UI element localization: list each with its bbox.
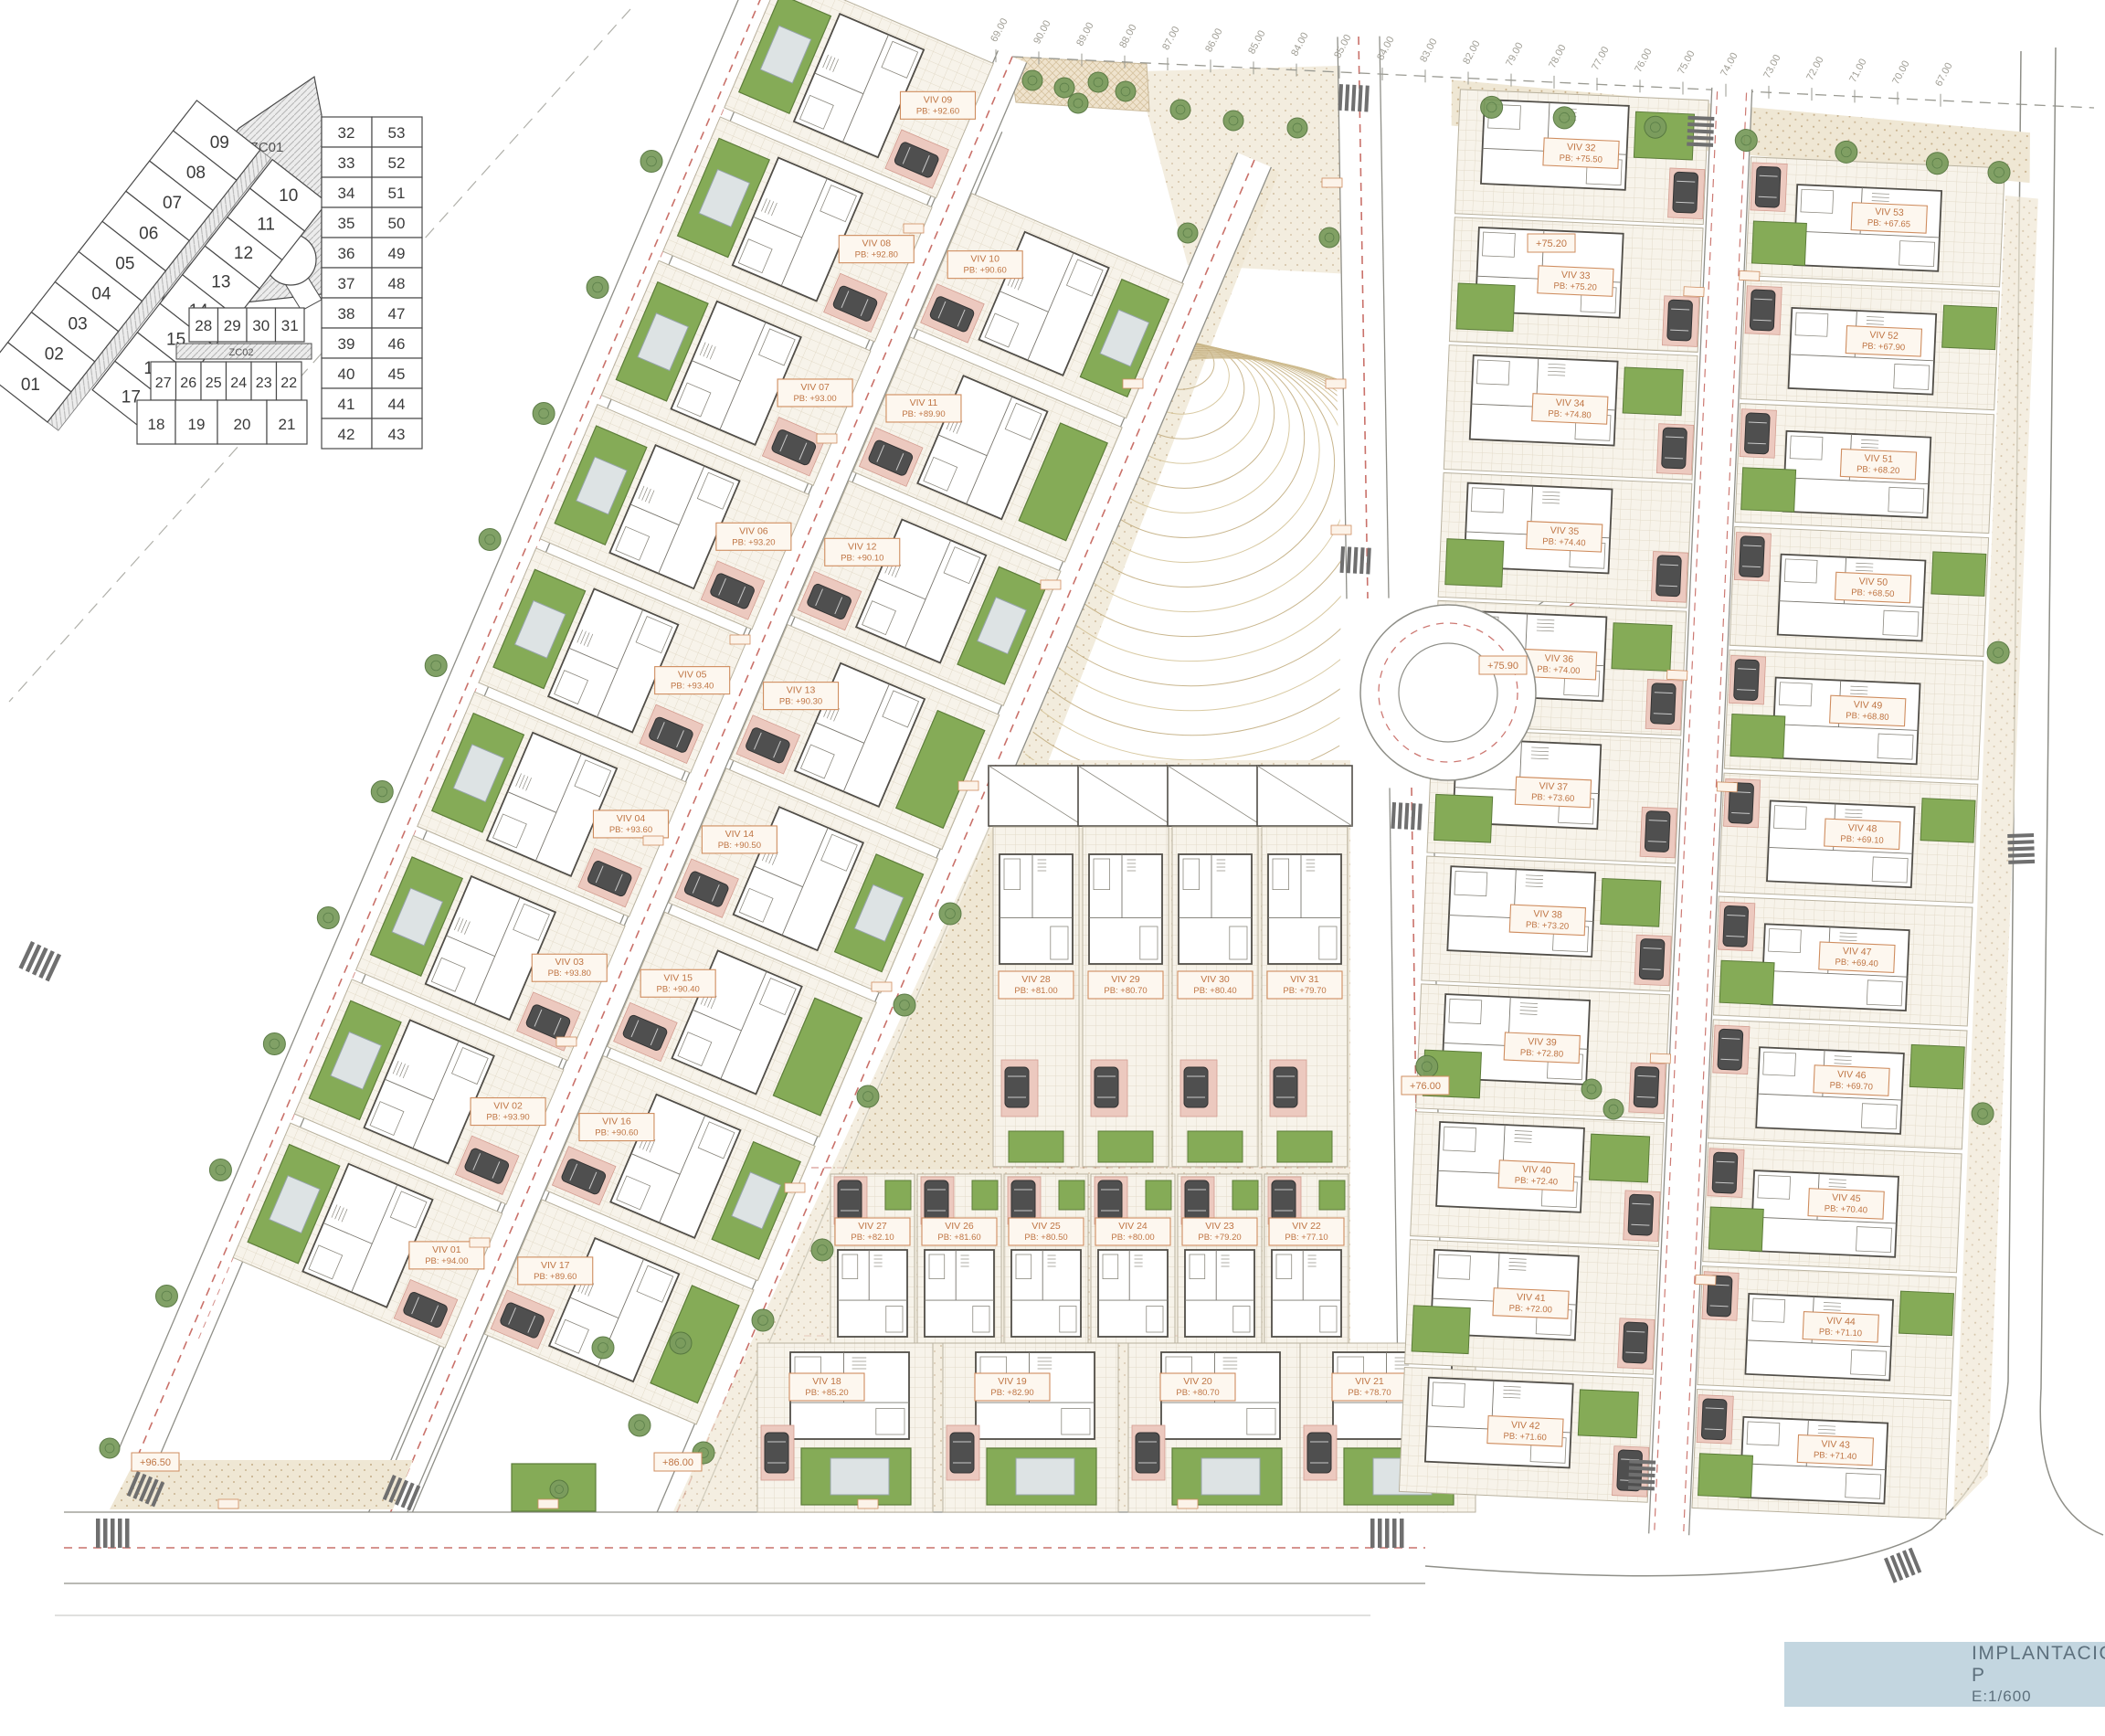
svg-text:VIV 17: VIV 17 <box>541 1260 570 1271</box>
svg-text:VIV 43: VIV 43 <box>1821 1438 1850 1450</box>
svg-text:24: 24 <box>230 376 247 391</box>
svg-text:PB: +78.70: PB: +78.70 <box>1348 1388 1391 1398</box>
elevation-marker <box>1331 525 1351 535</box>
villa-label: VIV 41PB: +72.00 <box>1493 1288 1569 1319</box>
tree-icon <box>1319 228 1339 248</box>
svg-text:VIV 47: VIV 47 <box>1843 946 1872 958</box>
villa-unit: VIV 26PB: +81.60 <box>917 1174 1001 1343</box>
villa-unit: VIV 27PB: +82.10 <box>830 1174 915 1343</box>
svg-text:VIV 28: VIV 28 <box>1021 974 1051 985</box>
road-elevation-label: +96.50 <box>132 1453 179 1471</box>
svg-text:PB: +80.40: PB: +80.40 <box>1193 986 1236 996</box>
road-elevation-label: +76.00 <box>1402 1076 1449 1095</box>
villa-unit: VIV 52PB: +67.90 <box>1740 281 1999 410</box>
svg-text:VIV 50: VIV 50 <box>1858 576 1888 587</box>
svg-text:09: 09 <box>210 133 229 153</box>
svg-text:PB: +69.10: PB: +69.10 <box>1840 834 1884 846</box>
villa-label: VIV 07PB: +93.00 <box>777 379 852 407</box>
svg-text:PB: +75.50: PB: +75.50 <box>1559 153 1603 165</box>
villa-label: VIV 18PB: +85.20 <box>789 1373 864 1401</box>
svg-text:08: 08 <box>186 164 206 183</box>
villa-label: VIV 13PB: +90.30 <box>764 683 839 710</box>
car-icon <box>1005 1067 1029 1107</box>
villa-label: VIV 16PB: +90.60 <box>579 1114 654 1141</box>
svg-text:PB: +75.20: PB: +75.20 <box>1553 281 1597 293</box>
elevation-marker <box>1666 670 1687 680</box>
svg-text:VIV 24: VIV 24 <box>1118 1221 1148 1232</box>
car-icon <box>838 1180 862 1221</box>
villa-label: VIV 26PB: +81.60 <box>922 1218 997 1245</box>
svg-text:PB: +72.80: PB: +72.80 <box>1520 1048 1564 1060</box>
key-plan-cell: 06 <box>139 224 158 243</box>
villa-unit: VIV 40PB: +72.40 <box>1411 1112 1665 1247</box>
car-icon <box>1755 166 1781 207</box>
svg-text:PB: +81.00: PB: +81.00 <box>1014 986 1057 996</box>
tree-icon <box>1835 141 1857 164</box>
tree-icon <box>587 277 608 299</box>
svg-text:PB: +90.30: PB: +90.30 <box>779 697 822 707</box>
key-plan-cell: 03 <box>69 315 88 334</box>
villa-label: VIV 10PB: +90.60 <box>947 251 1022 279</box>
tree-icon <box>209 1159 231 1181</box>
villa-label: VIV 38PB: +73.20 <box>1509 905 1585 936</box>
svg-text:VIV 21: VIV 21 <box>1355 1376 1384 1387</box>
svg-text:VIV 26: VIV 26 <box>945 1221 974 1232</box>
car-icon <box>1662 428 1687 469</box>
svg-text:01: 01 <box>21 376 40 395</box>
tree-icon <box>640 151 662 173</box>
car-icon <box>1623 1322 1648 1363</box>
svg-text:VIV 10: VIV 10 <box>970 254 1000 265</box>
svg-text:PB: +93.00: PB: +93.00 <box>793 394 836 404</box>
svg-text:19: 19 <box>188 416 206 433</box>
villa-unit: VIV 44PB: +71.10 <box>1698 1266 1956 1396</box>
tree-icon <box>1178 223 1198 243</box>
svg-text:VIV 38: VIV 38 <box>1533 908 1562 920</box>
elevation-marker <box>1696 1275 1716 1285</box>
villa-label: VIV 31PB: +79.70 <box>1267 971 1342 999</box>
tree-icon <box>1553 106 1576 129</box>
car-icon <box>1739 536 1764 577</box>
tree-icon <box>317 907 339 929</box>
car-icon <box>1185 1180 1209 1221</box>
car-icon <box>1634 1066 1659 1107</box>
svg-text:36: 36 <box>338 245 355 262</box>
car-icon <box>1645 810 1670 852</box>
svg-text:VIV 14: VIV 14 <box>725 829 755 840</box>
svg-text:VIV 53: VIV 53 <box>1875 206 1904 218</box>
svg-text:VIV 35: VIV 35 <box>1550 525 1579 537</box>
villa-unit: VIV 22PB: +77.10 <box>1264 1174 1349 1343</box>
key-plan-cell: 07 <box>163 194 182 213</box>
car-icon <box>1650 683 1676 725</box>
svg-text:30: 30 <box>252 317 270 334</box>
svg-text:11: 11 <box>257 215 275 234</box>
svg-text:PB: +77.10: PB: +77.10 <box>1285 1233 1328 1243</box>
tree-icon <box>857 1085 879 1107</box>
svg-text:39: 39 <box>338 335 355 353</box>
tree-icon <box>1480 96 1503 119</box>
villa-unit: VIV 30PB: +80.40 <box>1168 766 1263 1167</box>
svg-text:PB: +89.60: PB: +89.60 <box>534 1272 576 1282</box>
car-icon <box>1701 1399 1727 1440</box>
key-plan-cell: 01 <box>21 376 40 395</box>
villa-label: VIV 50PB: +68.50 <box>1835 572 1910 603</box>
villa-label: VIV 21PB: +78.70 <box>1332 1373 1407 1401</box>
svg-text:23: 23 <box>256 376 272 391</box>
svg-text:VIV 41: VIV 41 <box>1517 1292 1546 1304</box>
title-block-title: IMPLANTACIÓN P <box>1972 1643 2105 1687</box>
key-plan-cell: 02 <box>45 345 64 365</box>
svg-text:VIV 01: VIV 01 <box>432 1244 461 1255</box>
svg-text:VIV 29: VIV 29 <box>1111 974 1140 985</box>
svg-text:PB: +90.60: PB: +90.60 <box>595 1128 638 1138</box>
car-icon <box>1750 290 1775 331</box>
villa-label: VIV 03PB: +93.80 <box>532 954 607 981</box>
tree-icon <box>629 1414 651 1436</box>
svg-text:50: 50 <box>388 215 406 232</box>
villa-unit: VIV 18PB: +85.20 <box>757 1343 933 1512</box>
elevation-marker <box>470 1238 490 1247</box>
villa-unit: VIV 25PB: +80.50 <box>1004 1174 1088 1343</box>
villa-label: VIV 17PB: +89.60 <box>518 1257 593 1285</box>
elevation-marker <box>730 635 750 644</box>
road-right-north <box>1338 37 1389 599</box>
svg-text:PB: +93.90: PB: +93.90 <box>486 1113 529 1123</box>
svg-text:07: 07 <box>163 194 182 213</box>
villa-label: VIV 52PB: +67.90 <box>1846 326 1921 357</box>
elevation-marker <box>1178 1499 1198 1508</box>
car-icon <box>1136 1433 1159 1473</box>
car-icon <box>1744 413 1770 454</box>
elevation-marker <box>1684 287 1704 297</box>
svg-text:VIV 48: VIV 48 <box>1848 822 1878 834</box>
svg-text:PB: +71.60: PB: +71.60 <box>1503 1431 1547 1443</box>
svg-text:VIV 52: VIV 52 <box>1869 330 1899 342</box>
villa-label: VIV 34PB: +74.80 <box>1532 394 1608 425</box>
svg-text:41: 41 <box>338 396 355 413</box>
svg-text:PB: +73.20: PB: +73.20 <box>1526 920 1570 932</box>
elevation-marker <box>1326 379 1346 388</box>
tree-icon <box>1116 81 1136 101</box>
right-block: VIV 32PB: +75.50VIV 33PB: +75.20VIV 34PB… <box>1389 76 2047 1548</box>
car-icon <box>1655 556 1681 597</box>
villa-unit: VIV 28PB: +81.00 <box>989 766 1084 1167</box>
svg-text:VIV 13: VIV 13 <box>787 685 816 696</box>
tree-icon <box>1735 129 1758 152</box>
villa-unit: VIV 38PB: +73.20 <box>1422 856 1676 991</box>
roundabout <box>1360 605 1536 780</box>
svg-text:02: 02 <box>45 345 64 365</box>
key-plan-cell: 11 <box>257 215 275 234</box>
svg-text:+96.50: +96.50 <box>140 1457 171 1468</box>
elevation-marker <box>538 1499 558 1508</box>
svg-text:+86.00: +86.00 <box>662 1457 693 1468</box>
car-icon <box>1307 1433 1331 1473</box>
svg-text:PB: +74.40: PB: +74.40 <box>1542 536 1586 548</box>
villa-unit: VIV 42PB: +71.60 <box>1399 1368 1653 1503</box>
villa-label: VIV 12PB: +90.10 <box>825 538 900 566</box>
villa-unit: VIV 50PB: +68.50 <box>1729 526 1988 656</box>
road-elevation-label: +75.90 <box>1479 656 1527 674</box>
elevation-marker <box>958 781 978 790</box>
svg-text:PB: +79.70: PB: +79.70 <box>1283 986 1326 996</box>
svg-text:PB: +94.00: PB: +94.00 <box>425 1256 468 1266</box>
villa-label: VIV 47PB: +69.40 <box>1819 942 1895 973</box>
villa-unit: VIV 46PB: +69.70 <box>1708 1020 1967 1149</box>
svg-text:PB: +93.80: PB: +93.80 <box>548 969 591 979</box>
svg-text:PB: +93.20: PB: +93.20 <box>732 537 775 547</box>
villa-label: VIV 44PB: +71.10 <box>1803 1312 1878 1343</box>
svg-text:VIV 05: VIV 05 <box>678 670 707 681</box>
tree-icon <box>155 1286 177 1307</box>
tree-icon <box>100 1438 120 1458</box>
villa-unit: VIV 33PB: +75.20 <box>1449 217 1703 353</box>
svg-text:PB: +72.40: PB: +72.40 <box>1515 1176 1559 1188</box>
svg-text:27: 27 <box>155 376 172 391</box>
tree-icon <box>1987 641 2010 664</box>
tree-icon <box>1223 111 1243 131</box>
villa-label: VIV 53PB: +67.65 <box>1851 203 1927 234</box>
villa-label: VIV 30PB: +80.40 <box>1178 971 1253 999</box>
villa-label: VIV 51PB: +68.20 <box>1840 449 1916 480</box>
tree-icon <box>425 655 447 677</box>
key-plan-cell: 09 <box>210 133 229 153</box>
svg-text:PB: +68.80: PB: +68.80 <box>1846 711 1889 723</box>
villa-unit: VIV 19PB: +82.90 <box>943 1343 1118 1512</box>
tree-icon <box>939 903 961 925</box>
villa-unit: VIV 53PB: +67.65 <box>1746 157 2005 287</box>
villa-unit: VIV 47PB: +69.40 <box>1714 896 1973 1026</box>
tree-icon <box>894 994 915 1016</box>
villa-label: VIV 22PB: +77.10 <box>1269 1218 1344 1245</box>
svg-text:34: 34 <box>338 185 355 202</box>
villa-unit: VIV 24PB: +80.00 <box>1091 1174 1175 1343</box>
villa-label: VIV 25PB: +80.50 <box>1009 1218 1084 1245</box>
svg-text:20: 20 <box>234 416 251 433</box>
car-icon <box>1095 1067 1118 1107</box>
villa-label: VIV 15PB: +90.40 <box>640 969 715 997</box>
tree-icon <box>670 1332 692 1354</box>
svg-text:PB: +82.90: PB: +82.90 <box>990 1388 1033 1398</box>
villa-label: VIV 28PB: +81.00 <box>999 971 1074 999</box>
svg-text:PB: +73.60: PB: +73.60 <box>1531 792 1575 804</box>
svg-text:VIV 42: VIV 42 <box>1511 1420 1540 1432</box>
svg-text:PB: +90.60: PB: +90.60 <box>964 266 1007 276</box>
tree-icon <box>1287 118 1307 138</box>
key-plan-cell: 12 <box>234 244 253 263</box>
car-icon <box>1734 660 1760 701</box>
tree-icon <box>1088 72 1108 92</box>
villa-label: VIV 37PB: +73.60 <box>1515 777 1591 808</box>
svg-text:PB: +82.10: PB: +82.10 <box>851 1233 894 1243</box>
key-plan-cell: 10 <box>279 186 298 206</box>
elevation-marker <box>1322 178 1342 187</box>
tree-icon <box>479 529 501 551</box>
villa-label: VIV 05PB: +93.40 <box>655 667 730 694</box>
svg-text:VIV 39: VIV 39 <box>1528 1036 1557 1048</box>
key-plan-cell: 04 <box>91 285 111 304</box>
villa-label: VIV 08PB: +92.80 <box>839 236 914 263</box>
key-plan-cell: 13 <box>211 272 230 291</box>
tree-icon <box>1170 100 1190 120</box>
svg-text:PB: +92.60: PB: +92.60 <box>916 106 959 116</box>
villa-unit: VIV 39PB: +72.80 <box>1416 984 1670 1119</box>
villa-label: VIV 09PB: +92.60 <box>900 91 975 119</box>
svg-text:VIV 31: VIV 31 <box>1290 974 1319 985</box>
tree-icon <box>752 1309 774 1331</box>
car-icon <box>1617 1450 1643 1491</box>
tree-icon <box>371 781 393 803</box>
villa-unit: VIV 34PB: +74.80 <box>1444 345 1698 481</box>
villa-unit: VIV 20PB: +80.70 <box>1128 1343 1304 1512</box>
svg-text:VIV 08: VIV 08 <box>862 238 892 249</box>
villa-label: VIV 27PB: +82.10 <box>835 1218 910 1245</box>
road-elevation-label: +86.00 <box>654 1453 702 1471</box>
svg-text:49: 49 <box>388 245 406 262</box>
villa-unit: VIV 49PB: +68.80 <box>1724 650 1983 779</box>
svg-text:VIV 44: VIV 44 <box>1826 1316 1856 1328</box>
villa-label: VIV 19PB: +82.90 <box>975 1373 1050 1401</box>
site-plan-drawing: VIV 09PB: +92.60VIV 08PB: +92.80VIV 07PB… <box>0 0 2105 1736</box>
car-icon <box>765 1433 788 1473</box>
car-icon <box>1184 1067 1208 1107</box>
car-icon <box>1639 938 1665 979</box>
svg-text:51: 51 <box>388 185 406 202</box>
svg-text:ZC02: ZC02 <box>229 347 254 358</box>
tree-icon <box>1068 93 1088 113</box>
tree-icon <box>811 1239 833 1261</box>
svg-text:+75.20: +75.20 <box>1536 238 1567 249</box>
svg-text:VIV 46: VIV 46 <box>1837 1069 1867 1081</box>
svg-text:PB: +74.80: PB: +74.80 <box>1548 408 1592 420</box>
svg-text:04: 04 <box>91 285 111 304</box>
tree-icon <box>1603 1099 1624 1119</box>
road-elevation-label: +75.20 <box>1528 234 1575 252</box>
villa-label: VIV 04PB: +93.60 <box>593 810 668 838</box>
svg-text:VIV 30: VIV 30 <box>1201 974 1230 985</box>
svg-text:PB: +85.20: PB: +85.20 <box>805 1388 848 1398</box>
svg-text:44: 44 <box>388 396 406 413</box>
car-icon <box>1667 300 1693 341</box>
svg-text:VIV 22: VIV 22 <box>1292 1221 1321 1232</box>
villa-unit: VIV 45PB: +70.40 <box>1703 1143 1962 1273</box>
svg-text:22: 22 <box>280 376 297 391</box>
elevation-marker <box>1740 270 1760 281</box>
svg-text:05: 05 <box>115 254 134 273</box>
tree-icon <box>1581 1079 1602 1099</box>
svg-text:VIV 51: VIV 51 <box>1864 453 1893 465</box>
elevation-marker <box>643 836 663 845</box>
svg-text:03: 03 <box>69 315 88 334</box>
svg-text:43: 43 <box>388 426 406 443</box>
car-icon <box>1718 1029 1743 1070</box>
svg-text:VIV 37: VIV 37 <box>1539 780 1568 792</box>
villa-unit: VIV 41PB: +72.00 <box>1405 1240 1659 1375</box>
tree-icon <box>550 1480 568 1498</box>
svg-text:10: 10 <box>279 186 298 206</box>
svg-text:PB: +93.40: PB: +93.40 <box>671 682 714 692</box>
villa-label: VIV 48PB: +69.10 <box>1825 819 1900 850</box>
svg-text:28: 28 <box>195 317 212 334</box>
elevation-marker <box>817 434 837 443</box>
svg-text:PB: +71.40: PB: +71.40 <box>1814 1450 1857 1462</box>
svg-text:32: 32 <box>338 124 355 142</box>
svg-text:46: 46 <box>388 335 406 353</box>
car-icon <box>950 1433 974 1473</box>
car-icon <box>1712 1152 1738 1193</box>
key-plan-cell: 05 <box>115 254 134 273</box>
svg-text:VIV 18: VIV 18 <box>812 1376 841 1387</box>
tree-icon <box>1054 78 1074 98</box>
elevation-marker <box>1717 782 1737 792</box>
svg-text:38: 38 <box>338 305 355 323</box>
svg-text:VIV 25: VIV 25 <box>1031 1221 1061 1232</box>
villa-label: VIV 23PB: +79.20 <box>1182 1218 1257 1245</box>
svg-text:PB: +68.50: PB: +68.50 <box>1851 587 1895 599</box>
svg-text:PB: +74.00: PB: +74.00 <box>1537 664 1581 676</box>
tree-icon <box>592 1337 614 1359</box>
svg-text:VIV 07: VIV 07 <box>800 382 830 393</box>
car-icon <box>1011 1180 1035 1221</box>
svg-text:21: 21 <box>279 416 296 433</box>
svg-text:33: 33 <box>338 154 355 172</box>
svg-text:PB: +80.50: PB: +80.50 <box>1024 1233 1067 1243</box>
tree-icon <box>263 1033 285 1055</box>
svg-text:PB: +81.60: PB: +81.60 <box>937 1233 980 1243</box>
title-block: IMPLANTACIÓN P E:1/600 <box>1784 1642 2105 1707</box>
svg-text:VIV 34: VIV 34 <box>1556 397 1585 409</box>
svg-text:47: 47 <box>388 305 406 323</box>
svg-text:VIV 36: VIV 36 <box>1544 652 1573 664</box>
tree-icon <box>1972 1102 1994 1125</box>
svg-text:PB: +92.80: PB: +92.80 <box>855 250 898 260</box>
villa-label: VIV 24PB: +80.00 <box>1095 1218 1170 1245</box>
svg-text:VIV 09: VIV 09 <box>924 94 953 105</box>
elevation-marker <box>872 982 892 991</box>
svg-text:37: 37 <box>338 275 355 292</box>
svg-text:18: 18 <box>148 416 165 433</box>
svg-text:29: 29 <box>224 317 241 334</box>
svg-text:PB: +80.00: PB: +80.00 <box>1111 1233 1154 1243</box>
car-icon <box>1723 905 1749 947</box>
svg-text:VIV 04: VIV 04 <box>617 813 646 824</box>
villa-unit: VIV 51PB: +68.20 <box>1735 404 1994 534</box>
villa-label: VIV 29PB: +80.70 <box>1088 971 1163 999</box>
svg-text:VIV 19: VIV 19 <box>998 1376 1027 1387</box>
villa-unit: VIV 43PB: +71.40 <box>1692 1390 1951 1519</box>
villa-label: VIV 14PB: +90.50 <box>702 826 777 853</box>
title-block-scale: E:1/600 <box>1972 1687 2105 1707</box>
svg-text:52: 52 <box>388 154 406 172</box>
svg-text:PB: +71.10: PB: +71.10 <box>1819 1327 1863 1339</box>
svg-text:42: 42 <box>338 426 355 443</box>
svg-text:VIV 49: VIV 49 <box>1853 699 1882 711</box>
villa-label: VIV 02PB: +93.90 <box>471 1098 545 1126</box>
svg-text:VIV 02: VIV 02 <box>493 1101 523 1112</box>
villa-label: VIV 46PB: +69.70 <box>1814 1065 1889 1096</box>
villa-label: VIV 39PB: +72.80 <box>1504 1032 1580 1064</box>
villa-unit: VIV 35PB: +74.40 <box>1438 472 1692 608</box>
villa-unit: VIV 48PB: +69.10 <box>1719 773 1977 903</box>
svg-text:PB: +93.60: PB: +93.60 <box>609 825 652 835</box>
car-icon <box>1098 1180 1122 1221</box>
svg-text:VIV 12: VIV 12 <box>848 541 877 552</box>
car-icon <box>1673 172 1698 213</box>
svg-text:VIV 03: VIV 03 <box>555 957 585 968</box>
tree-icon <box>1415 1055 1438 1078</box>
svg-text:VIV 15: VIV 15 <box>663 972 693 983</box>
